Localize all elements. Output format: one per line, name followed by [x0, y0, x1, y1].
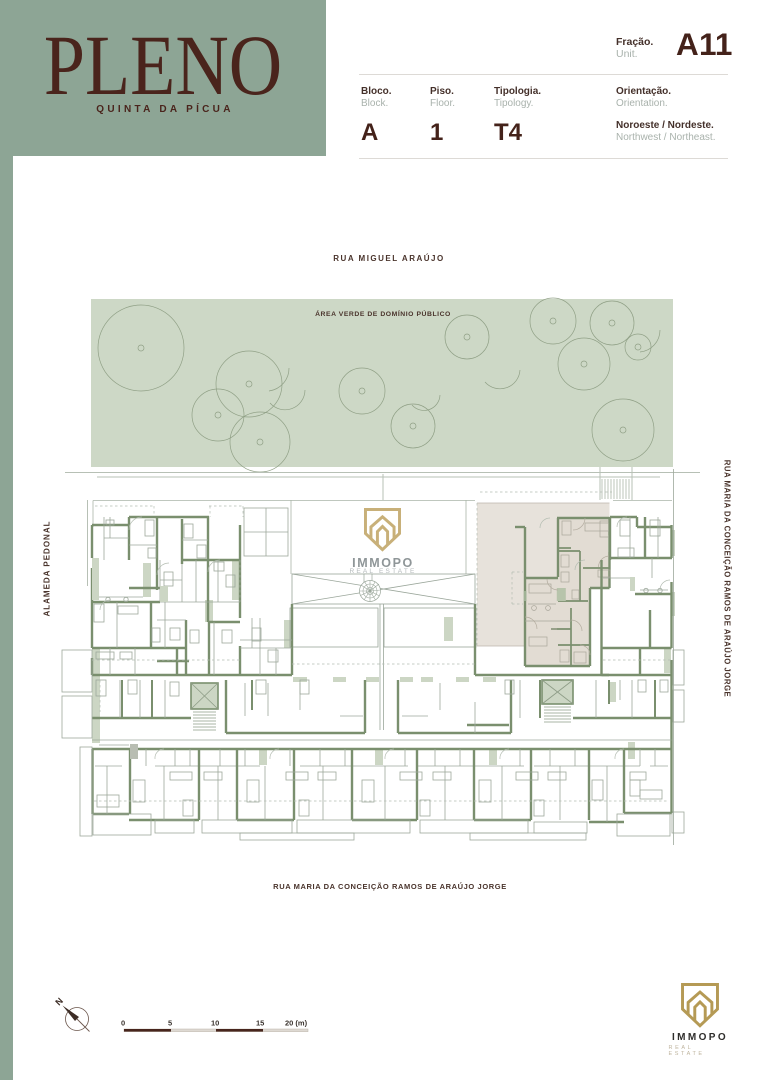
svg-text:10: 10 — [211, 1019, 219, 1028]
svg-text:0: 0 — [121, 1019, 125, 1028]
svg-text:5: 5 — [168, 1019, 172, 1028]
svg-text:15: 15 — [256, 1019, 264, 1028]
svg-text:20 (m): 20 (m) — [285, 1019, 308, 1028]
svg-text:N: N — [53, 996, 65, 1008]
